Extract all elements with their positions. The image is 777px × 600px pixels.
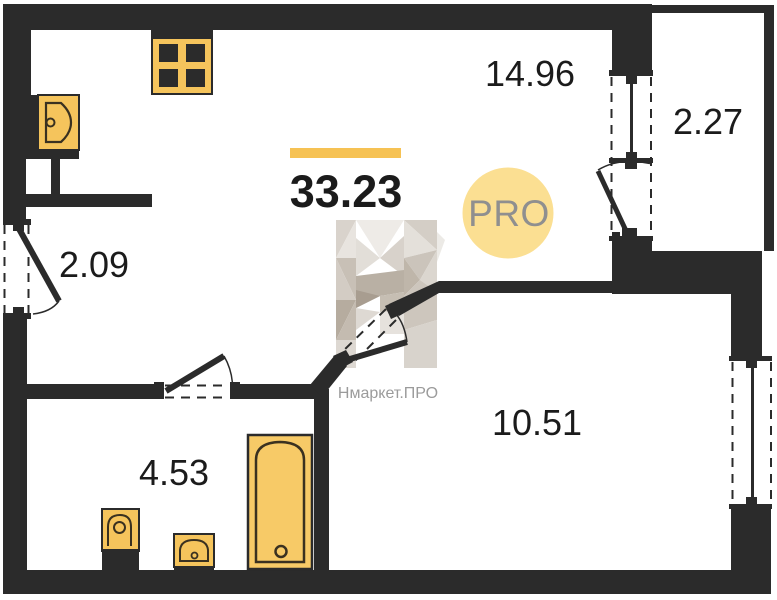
- svg-text:2.27: 2.27: [673, 101, 743, 142]
- svg-text:33.23: 33.23: [290, 166, 403, 217]
- svg-text:10.51: 10.51: [492, 402, 582, 443]
- svg-text:Нмаркет.ПРО: Нмаркет.ПРО: [338, 385, 438, 402]
- svg-text:14.96: 14.96: [485, 53, 575, 94]
- svg-text:2.09: 2.09: [59, 244, 129, 285]
- svg-text:PRO: PRO: [468, 193, 550, 234]
- svg-text:4.53: 4.53: [139, 452, 209, 493]
